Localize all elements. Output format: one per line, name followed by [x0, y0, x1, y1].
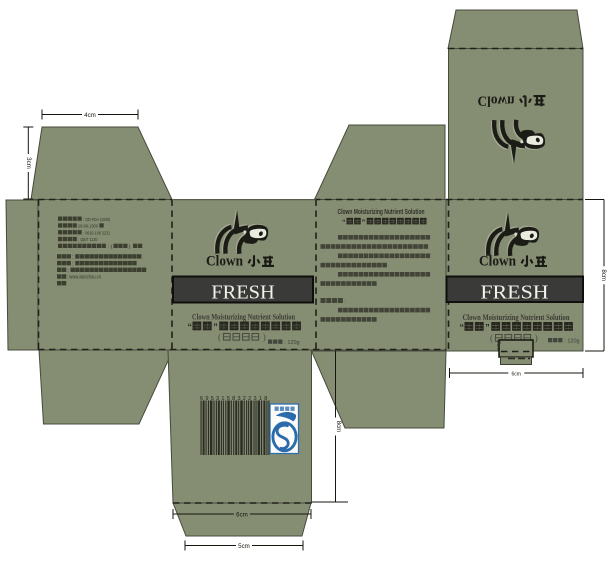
svg-text:FRESH: FRESH: [480, 281, 548, 303]
svg-text:“: “: [342, 219, 346, 226]
svg-text:Clown Moisturizing Nutrient So: Clown Moisturizing Nutrient Solution: [463, 313, 570, 322]
svg-text:Clown Moisturizing Nutrient So: Clown Moisturizing Nutrient Solution: [338, 207, 425, 216]
svg-text:: QB/T 1130: : QB/T 1130: [78, 237, 97, 243]
svg-text:Clown: Clown: [478, 93, 515, 109]
svg-text:: (: : (: [108, 244, 113, 250]
svg-text:(: (: [218, 332, 221, 342]
svg-text:”: ”: [213, 322, 218, 332]
svg-text:): ): [263, 332, 266, 342]
svg-text:Clown: Clown: [479, 254, 516, 270]
svg-text::: :: [67, 268, 69, 274]
svg-text:29-99-1300: 29-99-1300: [78, 224, 98, 230]
svg-text:2cm: 2cm: [495, 341, 501, 350]
svg-text:): ): [535, 333, 538, 343]
svg-text:3cm: 3cm: [25, 157, 32, 169]
svg-text::: :: [72, 255, 74, 261]
svg-text::: :: [72, 261, 74, 267]
svg-text:(: (: [490, 333, 493, 343]
svg-text:8cm: 8cm: [335, 421, 342, 433]
svg-text:4cm: 4cm: [84, 112, 96, 119]
svg-text:6cm: 6cm: [236, 512, 248, 519]
svg-text:: www.xiaochou.cn: : www.xiaochou.cn: [67, 275, 101, 281]
svg-text:Clown: Clown: [206, 254, 243, 270]
svg-text:“: “: [460, 322, 465, 332]
svg-text:6cm: 6cm: [512, 372, 521, 378]
svg-text:”: ”: [362, 219, 366, 226]
svg-text:“: “: [188, 322, 193, 332]
svg-text:Clown Moisturizing Nutrient So: Clown Moisturizing Nutrient Solution: [192, 313, 295, 322]
svg-text:: GD-FDA (1000): : GD-FDA (1000): [83, 217, 110, 223]
svg-text:: 0616-108 2231: : 0616-108 2231: [83, 230, 110, 236]
svg-text:5cm: 5cm: [238, 543, 250, 550]
svg-text:: 120g: : 120g: [564, 339, 579, 345]
svg-text:: 120g: : 120g: [284, 340, 299, 346]
svg-text:FRESH: FRESH: [211, 281, 275, 303]
svg-text:8cm: 8cm: [600, 269, 607, 281]
svg-text:”: ”: [485, 322, 490, 332]
